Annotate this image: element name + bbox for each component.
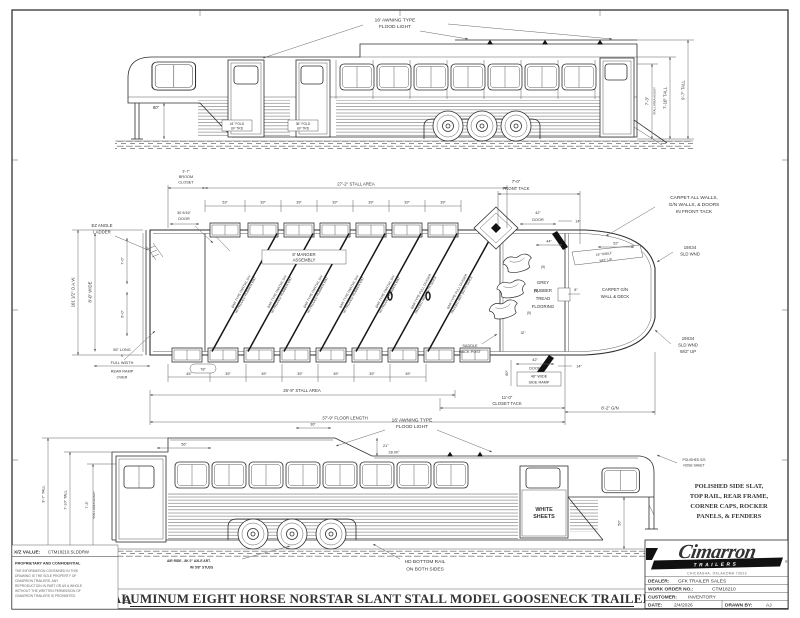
ramp-note: FULL WIDTH xyxy=(111,361,134,365)
brand-sub-logo: TRAILERS xyxy=(694,561,739,568)
dim-8: 8" xyxy=(574,288,578,292)
bottom-dim: 39" xyxy=(297,372,303,376)
awning-bracket xyxy=(447,452,453,457)
title-strip: ALUMINUM EIGHT HORSE NORSTAR SLANT STALL… xyxy=(112,589,653,607)
landing-jack xyxy=(131,103,143,139)
top-dim: 39" xyxy=(296,201,302,205)
door-42-dim: DOOR xyxy=(532,218,544,222)
awning-bracket xyxy=(542,40,548,45)
plan-outline xyxy=(150,230,655,355)
dim-60: 6'-0" xyxy=(121,310,125,318)
dim-32: 32" xyxy=(521,331,527,335)
plan-window xyxy=(428,223,458,237)
stall-window xyxy=(525,64,559,90)
gooseneck-window xyxy=(602,468,639,493)
dim-80: 80" xyxy=(153,105,160,110)
date-value: 2/4/2026 xyxy=(674,603,693,609)
side-ramp-label: SIDE RAMP xyxy=(529,381,550,385)
flooring-label: RUBBER xyxy=(534,288,552,293)
trailer-drawing: 16' AWNING TYPE FLOOD LIGHT 44" FOLD UP … xyxy=(0,0,800,618)
dim-52: 52" xyxy=(613,242,619,246)
white-sheets-label: SHEETS xyxy=(533,514,555,520)
wheel xyxy=(316,519,346,549)
saddle-rack xyxy=(502,253,534,275)
dim-tall-710: 7'-10" TALL xyxy=(64,490,68,509)
nose-sheet-label: POLISHED S/S xyxy=(683,458,707,462)
awning-label: FLOOD LIGHT xyxy=(396,424,428,430)
door-30-label: DOOR xyxy=(178,217,190,221)
sliding-window-label: 19X34 xyxy=(682,336,695,341)
dim-tall-710: 7'-10" TALL xyxy=(663,86,668,109)
stall-window xyxy=(377,64,411,90)
polished-note: CORNER CAPS, ROCKER xyxy=(690,503,768,510)
ladder-glyph xyxy=(146,243,163,260)
awning-label: 16' AWNING TYPE xyxy=(375,18,416,24)
stall-window xyxy=(212,462,246,488)
plan-window xyxy=(356,223,386,237)
dim-36: 36" xyxy=(310,423,316,427)
top-dim: 39" xyxy=(404,201,410,205)
fold-step-label: UP TRD xyxy=(297,126,310,130)
hd-rail-note: ON BOTH SIDES xyxy=(406,567,444,573)
flooring-label: GREY xyxy=(537,280,549,285)
revision-letter: A xyxy=(122,592,132,607)
shelf-label: W/2" LIP xyxy=(599,257,613,263)
saddle-post-label: SADDLE xyxy=(462,344,478,348)
carpet-gn-label: CARPET G/N xyxy=(602,287,628,292)
plan-window xyxy=(392,223,422,237)
dim-14: 14" xyxy=(576,365,582,369)
fold-step-label: 44" FOLD xyxy=(230,122,245,126)
ground-hatch xyxy=(115,141,693,150)
plan-window xyxy=(210,223,240,237)
broom-closet-label: 3'-7" xyxy=(182,170,190,174)
saddle-rack xyxy=(488,298,520,321)
stall-window xyxy=(434,462,468,488)
dim-60-ramp: 60" xyxy=(505,370,509,376)
dim-wide: 8'-0" WIDE xyxy=(88,281,93,302)
plan-window xyxy=(248,223,278,237)
proprietary-text: DRAWING IS THE SOLE PROPERTY OF xyxy=(15,574,76,578)
proprietary-block: X/Z VALUE: CTM18210.SLDDRW PROPRIETARY A… xyxy=(12,545,132,609)
awning-label: FLOOD LIGHT xyxy=(379,24,411,30)
white-sheets-door xyxy=(520,466,568,538)
proprietary-heading: PROPRIETARY AND CONFIDENTIAL xyxy=(15,562,81,566)
dealer-value: GFK TRAILER SALES xyxy=(678,579,726,585)
open-door-leaf xyxy=(552,231,568,250)
stall-window xyxy=(360,462,394,488)
bottom-dim: 39" xyxy=(261,372,267,376)
wheel xyxy=(433,111,463,141)
front-tack-dim: FRONT TACK xyxy=(503,186,530,191)
closet-tack-dim: 11'-0" xyxy=(502,395,513,400)
customer-label: CUSTOMER: xyxy=(648,595,677,601)
stall-window xyxy=(451,64,485,90)
stall-window xyxy=(562,64,596,90)
top-dim: 53" xyxy=(222,201,228,205)
customer-value: INVENTORY xyxy=(688,595,717,601)
dim-14: 14" xyxy=(575,220,581,224)
broom-closet-label: CLOSET xyxy=(178,181,194,185)
air-ride-note: W/ 5/8" STUDS xyxy=(190,566,214,570)
xz-value: CTM18210.SLDDRW xyxy=(48,550,90,555)
door-30-label: 30 9/16" xyxy=(177,211,192,215)
manger-label: 8' MANGER xyxy=(292,252,315,257)
sliding-window-label: 19X34 xyxy=(684,245,697,250)
dim-tall-97: 9'-7" TALL xyxy=(681,80,686,100)
title-block: Cimarron TRAILERS ® CHICKASHA, OKLAHOMA … xyxy=(645,540,788,609)
dim-50: 50" xyxy=(618,520,622,526)
fold-step-label: 36" FOLD xyxy=(296,122,311,126)
polished-note: TOP RAIL, REAR FRAME, xyxy=(690,493,769,500)
proprietary-text: CIMARRON TRAILERS IS PROHIBITED. xyxy=(15,594,76,598)
flooring-label: TREAD xyxy=(536,296,551,301)
saddle-post-label: RACK POST xyxy=(459,350,482,354)
bottom-dim: 45" xyxy=(186,372,192,376)
side-ramp-label: 48" WIDE xyxy=(531,375,548,379)
saddle-qty: (5) xyxy=(527,311,531,315)
manger-label: ASSEMBLY xyxy=(293,258,316,263)
proprietary-text: CIMARRON TRAILERS. ANY xyxy=(15,579,59,583)
rear-door xyxy=(600,58,634,137)
wheel xyxy=(467,111,497,141)
side-elevation-roadside: 16' AWNING TYPE FLOOD LIGHT 44" FOLD UP … xyxy=(115,18,694,151)
nose-sheet-label: NOSE SHEET xyxy=(683,464,704,468)
flooring-label: FLOORING xyxy=(532,304,555,309)
drawing-title: ALUMINUM EIGHT HORSE NORSTAR SLANT STALL… xyxy=(112,591,653,606)
carpet-gn-label: WALL & DECK xyxy=(601,294,630,299)
plan-window xyxy=(172,348,202,362)
dealer-label: DEALER: xyxy=(648,579,670,585)
drawn-by-value: AJ xyxy=(766,603,772,609)
dim-stall-height: 7'-3" xyxy=(645,96,650,105)
bottom-dim: 39" xyxy=(405,372,411,376)
door-42-dim: 42" xyxy=(535,211,541,215)
ladder-label: EZ ANGLE xyxy=(91,223,112,228)
proprietary-text: REPRODUCTION IN PART OR AS A WHOLE xyxy=(15,584,83,588)
brand-address: CHICKASHA, OKLAHOMA 73023 xyxy=(687,572,747,576)
ramp-note: 55" LONG xyxy=(113,348,130,352)
ladder-label: LADDER xyxy=(93,230,110,235)
date-label: DATE: xyxy=(648,603,663,609)
broom-closet-label: BROOM xyxy=(179,175,193,179)
ramp-note: OVER xyxy=(117,376,128,380)
top-dim: 39" xyxy=(440,201,446,205)
closet-tack-dim: CLOSET TACK xyxy=(492,401,522,406)
dim-stall-height: STALL AREA HEIGHT xyxy=(653,87,657,115)
work-order-label: WORK ORDER NO.: xyxy=(648,587,694,593)
bottom-dim: 39" xyxy=(369,372,375,376)
sliding-window-label: SLD WND xyxy=(678,343,698,348)
sliding-window-label: W/2" UP xyxy=(680,349,696,354)
door-42-dim: DOOR xyxy=(529,367,541,371)
plan-window xyxy=(284,223,314,237)
stall-window xyxy=(323,462,357,488)
door-42-dim: 42" xyxy=(532,358,538,362)
dim-oaw: 101 1/2" O.A.W. xyxy=(71,277,76,308)
bottom-dim: 39" xyxy=(333,372,339,376)
rear-door xyxy=(116,456,166,542)
floor-plan: BAR TYPE PARTIAL DIV W/ PADDED RUBBER MA… xyxy=(71,170,720,426)
dim-78-callout: 78" xyxy=(200,368,206,372)
polished-note: POLISHED SIDE SLAT, xyxy=(695,483,764,490)
stall-window xyxy=(249,462,283,488)
roof-angle: 28.00° xyxy=(388,451,400,455)
floor-length-dim: 37'-9" FLOOR LENGTH xyxy=(322,416,368,421)
fold-step-label: UP TRD xyxy=(231,126,244,130)
top-dim: 39" xyxy=(260,201,266,205)
awning-bracket xyxy=(487,40,493,45)
stall-area-dim: 26'-9" STALL AREA xyxy=(283,388,321,393)
saddle-qty: (5) xyxy=(541,265,545,269)
dim-tall-97: 9'-7" TALL xyxy=(42,485,46,502)
drawn-by-label: DRAWN BY: xyxy=(725,603,753,609)
top-dim: 39" xyxy=(332,201,338,205)
drawing-sheet: 16' AWNING TYPE FLOOD LIGHT 44" FOLD UP … xyxy=(0,0,800,618)
work-order-value: CTM18210 xyxy=(712,587,736,593)
gn-length-dim: 8'-2" G/N xyxy=(601,406,618,411)
carpet-note: G/N WALLS, & DOORS xyxy=(669,202,720,208)
wheel xyxy=(277,519,307,549)
hd-rail-note: HD BOTTOM RAIL xyxy=(405,559,446,565)
awning-bracket xyxy=(597,40,603,45)
plan-window xyxy=(320,223,350,237)
xz-label: X/Z VALUE: xyxy=(14,550,41,556)
carpet-note: IN FRONT TACK xyxy=(676,209,713,215)
hay-rack-diamond xyxy=(474,207,518,249)
dim-70: 7'-0" xyxy=(121,257,125,265)
dim-stall-height: 7'-3" xyxy=(85,501,89,509)
gn-wall-latch xyxy=(558,288,570,301)
front-tack-dim: 7'-0" xyxy=(512,179,521,184)
stall-window xyxy=(340,64,374,90)
wheel xyxy=(238,519,268,549)
sliding-window-label: SLD WND xyxy=(680,252,700,257)
dim-21: 21" xyxy=(383,444,389,448)
ramp-note: REAR RAMP xyxy=(111,370,134,374)
ground-hatch xyxy=(25,549,668,558)
proprietary-text: THE INFORMATION CONTAINED IN THIS xyxy=(15,569,79,573)
top-dim: 39" xyxy=(368,201,374,205)
proprietary-text: WITHOUT THE WRITTEN PERMISSION OF xyxy=(15,589,81,593)
stall-window xyxy=(488,64,522,90)
wheel xyxy=(501,111,531,141)
awning-label: 16' AWNING TYPE xyxy=(392,418,433,424)
landing-jack xyxy=(645,497,658,529)
awning-bracket xyxy=(477,452,483,457)
gooseneck-window xyxy=(152,62,196,90)
saddle-rack xyxy=(496,279,527,300)
carpet-note: CARPET ALL WALLS, xyxy=(670,195,718,201)
ramp-note: X xyxy=(121,354,124,358)
stall-window xyxy=(397,462,431,488)
dim-stall-height: STALL AREA HEIGHT xyxy=(92,491,96,519)
stall-window xyxy=(414,64,448,90)
dim-44: 44" xyxy=(546,240,552,244)
stall-window xyxy=(175,462,209,488)
stall-area-dim: 27'-2" STALL AREA xyxy=(337,182,375,187)
stall-window xyxy=(286,462,320,488)
dim-56: 56" xyxy=(181,443,187,447)
polished-note: PANELS, & FENDERS xyxy=(697,513,762,520)
bottom-dim: 39" xyxy=(225,372,231,376)
white-sheets-label: WHITE xyxy=(535,507,553,513)
air-ride-note: AIR RIDE - 8K 0" AXLE ART. xyxy=(167,559,211,563)
